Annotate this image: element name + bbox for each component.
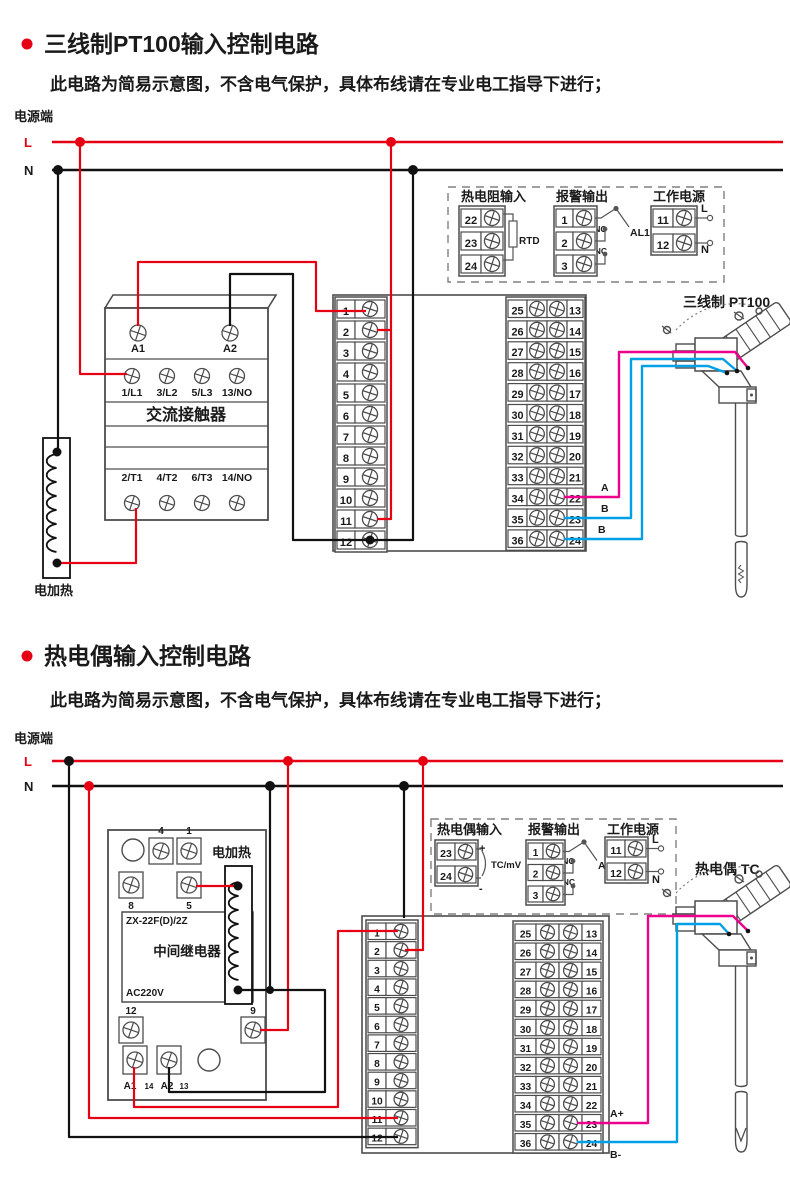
relay-t5-label: 5 bbox=[186, 901, 192, 912]
alarm-no-dot bbox=[571, 859, 575, 863]
contactor-14NO-label: 14/NO bbox=[222, 472, 252, 484]
screw-terminal-icon bbox=[564, 944, 578, 958]
terminal-number: 2 bbox=[374, 947, 380, 958]
screw-terminal-icon bbox=[130, 325, 146, 341]
alarm-common-wire bbox=[563, 843, 583, 852]
screw-terminal-icon bbox=[160, 369, 175, 384]
terminal-number: 23 bbox=[569, 514, 581, 526]
contactor-4T2-label: 4/T2 bbox=[156, 472, 177, 484]
screw-terminal-icon bbox=[541, 944, 555, 958]
terminal-number: 1 bbox=[533, 848, 539, 859]
terminal-number: 8 bbox=[343, 453, 349, 465]
terminal-number: 3 bbox=[374, 966, 380, 977]
screw-terminal-icon bbox=[550, 364, 565, 379]
screw-terminal-icon bbox=[550, 406, 565, 421]
relay-t9-label: 9 bbox=[250, 1006, 256, 1017]
terminal-strip: 123456789101112 bbox=[366, 920, 418, 1148]
terminal-strip: 2513261427152816291730183119322033213422… bbox=[506, 297, 585, 550]
terminal-number: 16 bbox=[586, 987, 598, 998]
wire-label-B1: B bbox=[601, 503, 609, 515]
screw-terminal-icon bbox=[550, 322, 565, 337]
wire-label-B-minus: B- bbox=[610, 1149, 622, 1161]
section2-power-terminal-label: 电源端 bbox=[14, 731, 53, 746]
screw-terminal-icon bbox=[676, 235, 691, 250]
terminal-number: 24 bbox=[586, 1139, 598, 1150]
head-body bbox=[695, 901, 737, 934]
screw-terminal-icon bbox=[222, 325, 238, 341]
power-l-pin bbox=[658, 846, 663, 851]
screw-terminal-icon bbox=[362, 322, 377, 337]
collar-dot bbox=[750, 957, 753, 960]
screw-terminal-icon bbox=[576, 233, 591, 248]
terminal-number: 24 bbox=[465, 261, 478, 273]
terminal-number: 19 bbox=[569, 431, 581, 443]
section2-L-label: L bbox=[24, 754, 32, 769]
screw-terminal-icon bbox=[362, 343, 377, 358]
screw-terminal-icon bbox=[394, 980, 408, 994]
electric-heater-top bbox=[43, 438, 70, 578]
alarm-common-wire bbox=[595, 209, 615, 218]
relay-t8-label: 8 bbox=[128, 901, 134, 912]
legend-tc-title: 热电偶输入 bbox=[437, 822, 502, 837]
terminal-number: 12 bbox=[610, 868, 622, 880]
rtd-element-icon bbox=[739, 565, 744, 583]
terminal-number: 26 bbox=[511, 326, 523, 338]
screw-terminal-icon bbox=[564, 982, 578, 996]
terminal-number: 20 bbox=[586, 1063, 598, 1074]
section2-title: 热电偶输入控制电路 bbox=[44, 643, 252, 669]
terminal-number: 31 bbox=[511, 431, 523, 443]
screw-terminal-icon bbox=[362, 448, 377, 463]
alarm-nc-dot bbox=[603, 252, 607, 256]
terminal-number: 2 bbox=[561, 238, 567, 250]
terminal-number: 29 bbox=[511, 389, 523, 401]
wire-label-A-plus: A+ bbox=[610, 1108, 624, 1120]
terminal-number: 1 bbox=[561, 215, 567, 227]
terminal-number: 6 bbox=[374, 1022, 380, 1033]
legend-power-l-bottom: L bbox=[652, 834, 659, 846]
screw-terminal-icon bbox=[541, 1078, 555, 1092]
sensor-head bbox=[662, 864, 790, 1152]
screw-terminal-icon bbox=[564, 1078, 578, 1092]
terminal-number: 15 bbox=[586, 968, 598, 979]
screw-terminal-icon bbox=[484, 256, 499, 271]
terminal-number: 11 bbox=[657, 215, 669, 227]
screw-terminal-icon bbox=[530, 301, 545, 316]
coupling-nut bbox=[676, 907, 695, 914]
terminal-strip: 2513261427152816291730183119322033213422… bbox=[513, 921, 603, 1153]
screw-terminal-icon bbox=[362, 427, 377, 442]
screw-terminal-icon bbox=[550, 301, 565, 316]
wire-rtd-B2 bbox=[564, 366, 727, 539]
terminal-number: 23 bbox=[586, 1120, 598, 1131]
legend-rtd-title: 热电阻输入 bbox=[461, 189, 526, 204]
screw-terminal-icon bbox=[576, 210, 591, 225]
pt100-sensor-label: 三线制 PT100 bbox=[683, 294, 770, 310]
section2-bullet-icon bbox=[22, 651, 33, 662]
legend-power-l-top: L bbox=[701, 203, 708, 215]
screw-terminal-icon bbox=[550, 510, 565, 525]
screw-terminal-icon bbox=[123, 1022, 139, 1038]
heater-top-label: 电加热 bbox=[34, 583, 73, 598]
screw-terminal-icon bbox=[153, 843, 169, 859]
terminal-number: 35 bbox=[520, 1120, 532, 1131]
alarm-no-dot bbox=[603, 227, 607, 231]
screw-terminal-icon bbox=[628, 841, 642, 855]
alarm-nc-dot bbox=[571, 884, 575, 888]
terminal-number: 3 bbox=[561, 261, 567, 273]
screw-terminal-icon bbox=[530, 531, 545, 546]
screw-terminal-icon bbox=[564, 1116, 578, 1130]
screw-terminal-icon bbox=[127, 1052, 143, 1068]
screw-terminal-icon bbox=[530, 427, 545, 442]
screw-terminal-icon bbox=[541, 1135, 555, 1149]
power-n-pin bbox=[707, 240, 712, 245]
screw-terminal-icon bbox=[458, 844, 472, 858]
terminal-legend-top: 热电阻输入 报警输出 工作电源 RTD NO NC AL1 L N 222324… bbox=[448, 187, 724, 282]
terminal-number: 7 bbox=[343, 432, 349, 444]
screw-terminal-icon bbox=[394, 1074, 408, 1088]
terminal-strips-top: 1234567891011122513261427152816291730183… bbox=[335, 297, 585, 552]
screw-terminal-icon bbox=[564, 963, 578, 977]
screw-terminal-icon bbox=[564, 1002, 578, 1016]
terminal-strip: 123 bbox=[554, 206, 597, 276]
terminal-number: 12 bbox=[340, 537, 352, 549]
screw-terminal-icon bbox=[546, 844, 559, 857]
terminal-number: 21 bbox=[586, 1082, 598, 1093]
section2-subtitle: 此电路为简易示意图，不含电气保护，具体布线请在专业电工指导下进行； bbox=[50, 690, 611, 710]
terminal-number: 34 bbox=[511, 493, 523, 505]
manual-page: 三线制PT100输入控制电路 此电路为简易示意图，不含电气保护，具体布线请在专业… bbox=[0, 0, 790, 1188]
terminal-strips-bottom: 1234567891011122513261427152816291730183… bbox=[366, 920, 603, 1153]
alarm-blade bbox=[584, 842, 597, 861]
screw-terminal-icon bbox=[541, 1116, 555, 1130]
power-n-pin bbox=[658, 869, 663, 874]
screw-terminal-icon bbox=[230, 496, 245, 511]
ac-contactor: A1 A2 1/L1 3/L2 5/L3 13/NO 交流接触器 2/T1 4/… bbox=[105, 295, 276, 520]
probe-sheath bbox=[736, 403, 748, 597]
terminal-number: 14 bbox=[569, 326, 581, 338]
screw-terminal-icon bbox=[195, 496, 210, 511]
screw-terminal-icon bbox=[541, 1059, 555, 1073]
terminal-number: 5 bbox=[343, 390, 349, 402]
terminal-number: 33 bbox=[520, 1082, 532, 1093]
relay-model: ZX-22F(D)/2Z bbox=[126, 916, 188, 927]
screw-terminal-icon bbox=[676, 210, 691, 225]
terminal-strip: 2324 bbox=[435, 840, 478, 886]
section1-power-terminal-label: 电源端 bbox=[14, 109, 53, 124]
terminal-number: 12 bbox=[657, 240, 669, 252]
terminal-number: 35 bbox=[511, 514, 523, 526]
screw-terminal-icon bbox=[160, 496, 175, 511]
screw-terminal-icon bbox=[530, 406, 545, 421]
screw-terminal-icon bbox=[245, 1022, 261, 1038]
screw-terminal-icon bbox=[530, 490, 545, 505]
screw-terminal-icon bbox=[576, 256, 591, 271]
terminal-number: 9 bbox=[343, 474, 349, 486]
rtd-resistor-icon bbox=[509, 221, 517, 247]
legend-tc-minus: - bbox=[479, 883, 483, 895]
screw-terminal-icon bbox=[195, 369, 210, 384]
terminal-number: 10 bbox=[340, 495, 352, 507]
collar-dot bbox=[750, 394, 753, 397]
terminal-number: 7 bbox=[374, 1040, 380, 1051]
terminal-number: 8 bbox=[374, 1059, 380, 1070]
legend-tc-device: TC/mV bbox=[491, 860, 522, 871]
screw-terminal-icon bbox=[550, 490, 565, 505]
terminal-number: 11 bbox=[340, 516, 352, 528]
screw-terminal-icon bbox=[394, 1055, 408, 1069]
legend-alarm-title-top: 报警输出 bbox=[556, 189, 608, 204]
screw-terminal-icon bbox=[546, 887, 559, 900]
terminal-number: 28 bbox=[520, 987, 532, 998]
terminal-number: 11 bbox=[610, 845, 621, 857]
terminal-number: 4 bbox=[374, 984, 380, 995]
terminal-number: 23 bbox=[440, 848, 452, 860]
screw-terminal-icon bbox=[530, 364, 545, 379]
terminal-number: 5 bbox=[374, 1003, 380, 1014]
screw-terminal-icon bbox=[123, 877, 139, 893]
terminal-number: 22 bbox=[465, 215, 477, 227]
terminal-number: 30 bbox=[520, 1025, 532, 1036]
screw-terminal-icon bbox=[181, 843, 197, 859]
terminal-number: 18 bbox=[586, 1025, 598, 1036]
legend-power-title-top: 工作电源 bbox=[653, 189, 705, 204]
terminal-number: 24 bbox=[440, 871, 452, 883]
terminal-number: 3 bbox=[343, 348, 349, 360]
terminal-number: 25 bbox=[511, 305, 523, 317]
legend-alarm-title-bottom: 报警输出 bbox=[528, 822, 580, 837]
screw-terminal-icon bbox=[541, 982, 555, 996]
contactor-6T3-label: 6/T3 bbox=[191, 472, 212, 484]
screw-terminal-icon bbox=[550, 531, 565, 546]
screw-terminal-icon bbox=[541, 925, 555, 939]
relay-t12-label: 12 bbox=[125, 1006, 137, 1017]
screw-terminal-icon bbox=[564, 1040, 578, 1054]
terminal-number: 23 bbox=[465, 238, 477, 250]
alarm-blade bbox=[616, 209, 629, 228]
screw-terminal-icon bbox=[550, 343, 565, 358]
terminal-number: 21 bbox=[569, 473, 581, 485]
screw-terminal-icon bbox=[530, 448, 545, 463]
contactor-3L2-label: 3/L2 bbox=[156, 387, 177, 399]
terminal-number: 24 bbox=[569, 535, 581, 547]
terminal-number: 22 bbox=[586, 1101, 598, 1112]
terminal-number: 2 bbox=[343, 327, 349, 339]
terminal-number: 36 bbox=[520, 1139, 532, 1150]
relay-13-label: 13 bbox=[180, 1082, 189, 1091]
screw-terminal-icon bbox=[550, 469, 565, 484]
screw-terminal-icon bbox=[541, 1021, 555, 1035]
screw-terminal-icon bbox=[564, 925, 578, 939]
terminal-number: 36 bbox=[511, 535, 523, 547]
section2-N-label: N bbox=[24, 779, 33, 794]
contactor-2T1-label: 2/T1 bbox=[121, 472, 142, 484]
legend-power-n-bottom: N bbox=[652, 874, 660, 886]
terminal-number: 11 bbox=[372, 1115, 383, 1126]
screw-terminal-icon bbox=[394, 962, 408, 976]
terminal-number: 2 bbox=[533, 870, 539, 881]
relay-name: 中间继电器 bbox=[153, 943, 221, 959]
screw-terminal-icon bbox=[628, 864, 642, 878]
terminal-number: 25 bbox=[520, 930, 532, 941]
terminal-number: 9 bbox=[374, 1078, 380, 1089]
screw-terminal-icon bbox=[550, 385, 565, 400]
sensor-head bbox=[662, 301, 790, 597]
terminal-number: 32 bbox=[511, 452, 523, 464]
screw-terminal-icon bbox=[394, 1018, 408, 1032]
screw-terminal-icon bbox=[362, 385, 377, 400]
screw-terminal-icon bbox=[541, 1040, 555, 1054]
screw-terminal-icon bbox=[181, 877, 197, 893]
screw-terminal-icon bbox=[394, 999, 408, 1013]
screw-terminal-icon bbox=[230, 369, 245, 384]
heater-coil bbox=[43, 438, 70, 578]
head-neck bbox=[702, 934, 751, 950]
terminal-number: 22 bbox=[569, 493, 581, 505]
screw-terminal-icon bbox=[362, 364, 377, 379]
section1-subtitle: 此电路为简易示意图，不含电气保护，具体布线请在专业电工指导下进行； bbox=[50, 74, 611, 94]
terminal-number: 18 bbox=[569, 410, 581, 422]
terminal-number: 3 bbox=[533, 891, 539, 902]
relay-A2-label: A2 bbox=[161, 1081, 174, 1092]
section1-N-label: N bbox=[24, 163, 33, 178]
screw-terminal-icon bbox=[161, 1052, 177, 1068]
screw-terminal-icon bbox=[564, 1097, 578, 1111]
terminal-number: 6 bbox=[343, 411, 349, 423]
contactor-13NO-label: 13/NO bbox=[222, 387, 252, 399]
screw-terminal-icon bbox=[362, 469, 377, 484]
screw-terminal-icon bbox=[564, 1059, 578, 1073]
terminal-number: 4 bbox=[343, 369, 350, 381]
wire-label-A: A bbox=[601, 482, 609, 494]
terminal-number: 33 bbox=[511, 473, 523, 485]
contactor-name: 交流接触器 bbox=[146, 405, 227, 424]
screw-terminal-icon bbox=[530, 322, 545, 337]
terminal-number: 34 bbox=[520, 1101, 532, 1112]
relay-voltage: AC220V bbox=[126, 988, 164, 999]
relay-14-label: 14 bbox=[145, 1082, 154, 1091]
terminal-number: 29 bbox=[520, 1006, 532, 1017]
screw-terminal-icon bbox=[546, 866, 559, 879]
wire-rtd-B1 bbox=[564, 359, 737, 518]
relay-t1-label: 1 bbox=[186, 826, 192, 837]
legend-rtd-device: RTD bbox=[519, 236, 540, 247]
tc-sensor-label: 热电偶 TC bbox=[695, 861, 760, 877]
screw-terminal-icon bbox=[394, 1036, 408, 1050]
section1-bullet-icon bbox=[22, 39, 33, 50]
terminal-number: 19 bbox=[586, 1044, 598, 1055]
terminal-number: 28 bbox=[511, 368, 523, 380]
terminal-number: 26 bbox=[520, 949, 532, 960]
terminal-number: 30 bbox=[511, 410, 523, 422]
terminal-strip: 222324 bbox=[459, 206, 505, 276]
terminal-number: 27 bbox=[520, 968, 532, 979]
screw-terminal-icon bbox=[530, 385, 545, 400]
terminal-strip: 1112 bbox=[651, 206, 697, 255]
screw-terminal-icon bbox=[530, 469, 545, 484]
screw-terminal-icon bbox=[530, 510, 545, 525]
terminal-number: 17 bbox=[569, 389, 581, 401]
contactor-5L3-label: 5/L3 bbox=[191, 387, 212, 399]
heater-bottom-label: 电加热 bbox=[212, 845, 251, 860]
terminal-number: 12 bbox=[371, 1134, 383, 1145]
wiring-diagram-canvas: 三线制PT100输入控制电路 此电路为简易示意图，不含电气保护，具体布线请在专业… bbox=[0, 0, 790, 1188]
section1-title: 三线制PT100输入控制电路 bbox=[44, 31, 320, 57]
terminal-number: 15 bbox=[569, 347, 581, 359]
terminal-strip: 123456789101112 bbox=[335, 297, 387, 552]
contactor-a1-label: A1 bbox=[131, 343, 145, 355]
screw-terminal-icon bbox=[550, 427, 565, 442]
screw-terminal-icon bbox=[125, 369, 140, 384]
screw-terminal-icon bbox=[362, 511, 377, 526]
terminal-strip: 123 bbox=[526, 840, 565, 905]
screw-terminal-icon bbox=[362, 301, 377, 316]
screw-terminal-icon bbox=[484, 233, 499, 248]
pt100-sensor bbox=[662, 301, 790, 597]
terminal-number: 27 bbox=[511, 347, 523, 359]
contactor-a2-label: A2 bbox=[223, 343, 237, 355]
contactor-1L1-label: 1/L1 bbox=[121, 387, 142, 399]
screw-terminal-icon bbox=[394, 1092, 408, 1106]
screw-terminal-icon bbox=[541, 1002, 555, 1016]
relay-t4-label: 4 bbox=[158, 826, 164, 837]
terminal-legend-bottom: 热电偶输入 报警输出 工作电源 + - TC/mV NO NC AL1 L N … bbox=[431, 819, 676, 914]
screw-terminal-icon bbox=[458, 867, 472, 881]
screw-terminal-icon bbox=[541, 1097, 555, 1111]
section1-L-label: L bbox=[24, 135, 32, 150]
terminal-number: 32 bbox=[520, 1063, 532, 1074]
screw-terminal-icon bbox=[484, 210, 499, 225]
tc-sensor bbox=[662, 864, 790, 1152]
screw-terminal-icon bbox=[362, 406, 377, 421]
screw-terminal-icon bbox=[530, 343, 545, 358]
terminal-number: 20 bbox=[569, 452, 581, 464]
screw-terminal-icon bbox=[564, 1135, 578, 1149]
screw-terminal-icon bbox=[125, 496, 140, 511]
screw-terminal-icon bbox=[362, 490, 377, 505]
terminal-number: 14 bbox=[586, 949, 598, 960]
screw-terminal-icon bbox=[541, 963, 555, 977]
terminal-number: 10 bbox=[371, 1096, 383, 1107]
wire-label-B2: B bbox=[598, 524, 606, 536]
tc-junction-icon bbox=[736, 1128, 746, 1141]
legend-power-n-top: N bbox=[701, 244, 709, 256]
terminal-number: 17 bbox=[586, 1006, 598, 1017]
legend-al1-label-top: AL1 bbox=[630, 227, 650, 239]
screw-terminal-icon bbox=[550, 448, 565, 463]
terminal-number: 31 bbox=[520, 1044, 532, 1055]
terminal-number: 13 bbox=[569, 305, 581, 317]
probe-sheath bbox=[736, 966, 748, 1152]
terminal-number: 16 bbox=[569, 368, 581, 380]
terminal-strip: 1112 bbox=[605, 837, 648, 883]
terminal-number: 13 bbox=[586, 930, 598, 941]
coupling-nut bbox=[676, 344, 695, 351]
screw-terminal-icon bbox=[564, 1021, 578, 1035]
power-l-pin bbox=[707, 215, 712, 220]
